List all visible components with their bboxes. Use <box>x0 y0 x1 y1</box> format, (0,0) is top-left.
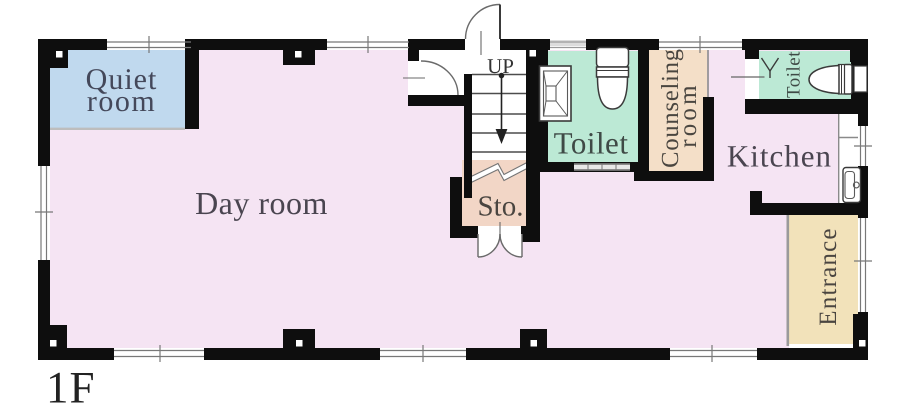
svg-text:room: room <box>675 82 702 148</box>
svg-text:Sto.: Sto. <box>478 191 524 223</box>
svg-text:Toilet: Toilet <box>784 51 805 98</box>
svg-text:room: room <box>87 85 156 118</box>
svg-text:Kitchen: Kitchen <box>727 139 832 174</box>
svg-text:Entrance: Entrance <box>815 227 842 325</box>
svg-text:UP: UP <box>487 54 514 78</box>
svg-text:Toilet: Toilet <box>554 126 629 161</box>
svg-text:1F: 1F <box>46 363 96 407</box>
svg-text:Day room: Day room <box>195 185 328 221</box>
